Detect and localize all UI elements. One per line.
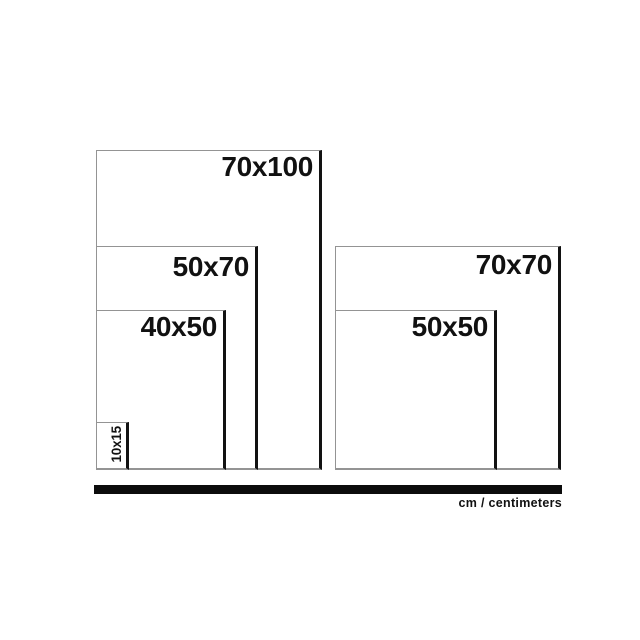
size-label-10x15: 10x15 <box>109 426 124 463</box>
size-label-70x70: 70x70 <box>476 250 552 279</box>
unit-label: cm / centimeters <box>300 496 562 510</box>
size-label-50x70: 50x70 <box>173 252 249 281</box>
size-label-70x100: 70x100 <box>221 152 313 181</box>
size-rect-50x50: 50x50 <box>335 310 497 470</box>
size-comparison-diagram: 70x100 50x70 40x50 10x15 70x70 50x50 cm … <box>0 0 640 640</box>
size-rect-10x15: 10x15 <box>96 422 129 470</box>
size-label-40x50: 40x50 <box>141 312 217 341</box>
size-label-50x50: 50x50 <box>412 312 488 341</box>
scale-bar <box>94 485 562 494</box>
